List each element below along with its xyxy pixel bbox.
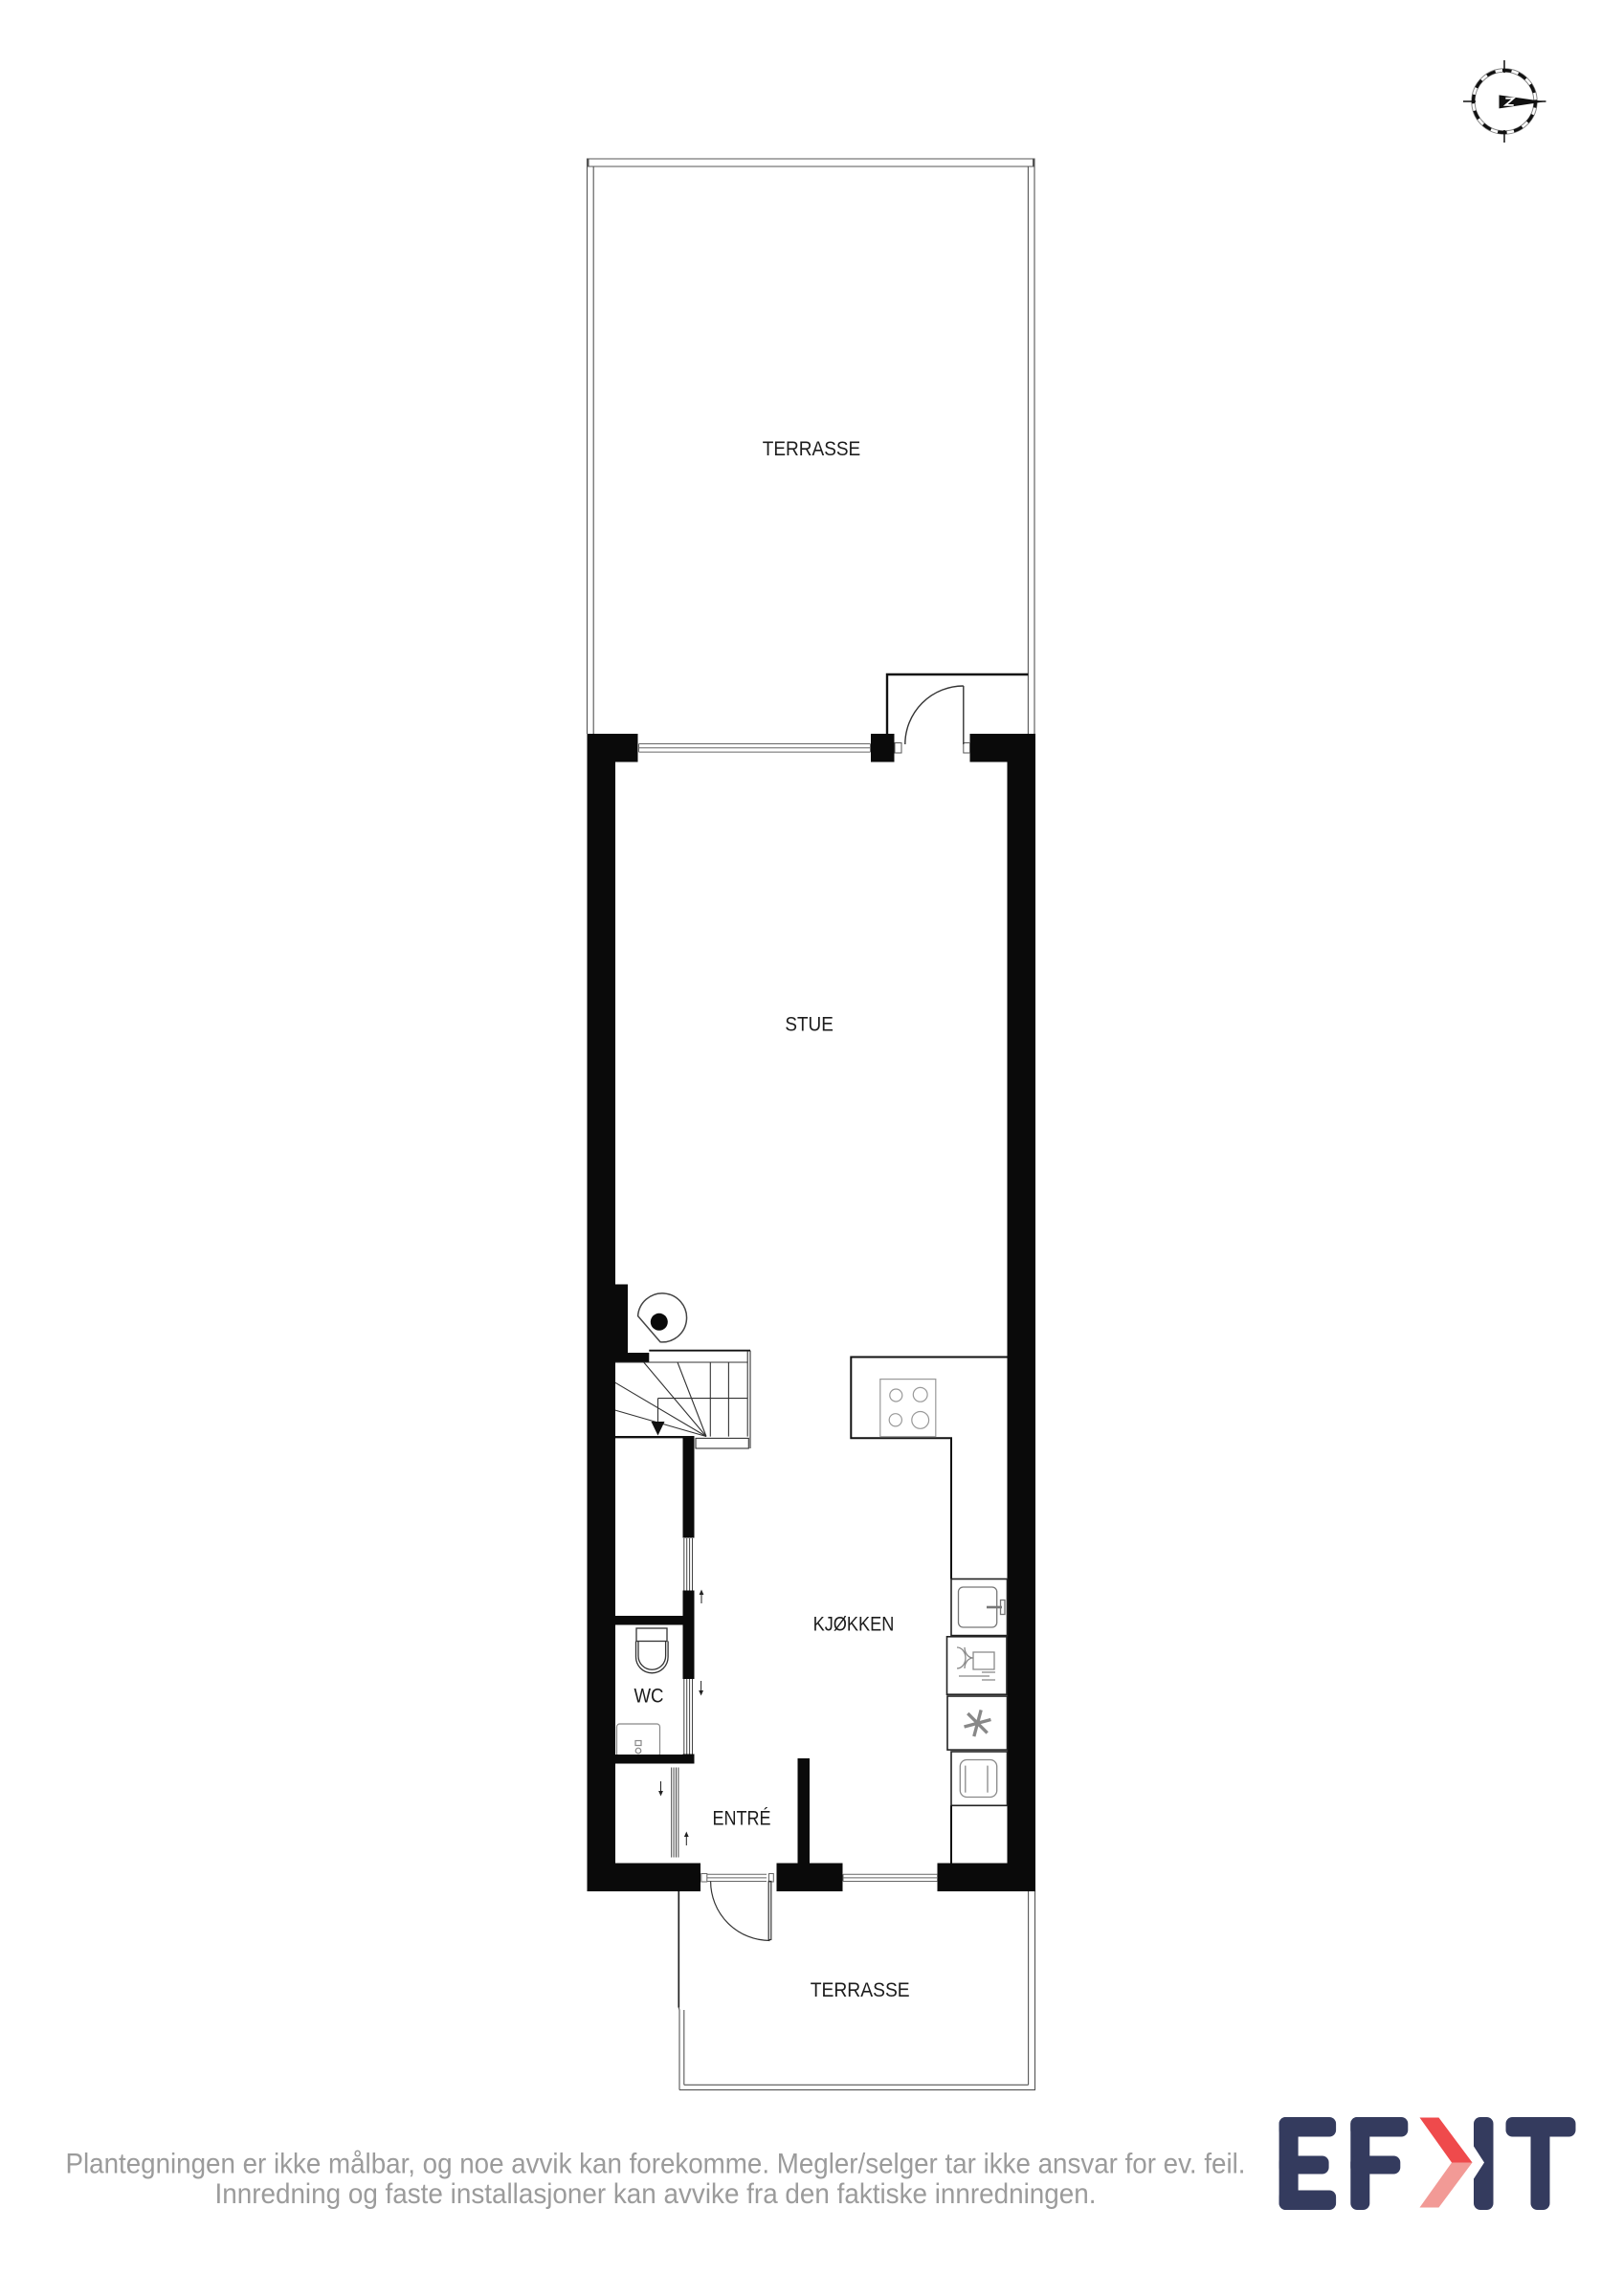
svg-text:ENTRÉ: ENTRÉ [713,1808,771,1830]
svg-text:Innredning og faste installasj: Innredning og faste installasjoner kan a… [215,2178,1097,2210]
svg-text:Plantegningen er ikke målbar,: Plantegningen er ikke målbar, og noe avv… [66,2148,1246,2179]
svg-text:TERRASSE: TERRASSE [763,438,861,460]
svg-text:WC: WC [634,1686,664,1708]
svg-text:STUE: STUE [785,1014,834,1036]
svg-text:TERRASSE: TERRASSE [811,1979,910,2001]
svg-text:KJØKKEN: KJØKKEN [813,1614,895,1636]
